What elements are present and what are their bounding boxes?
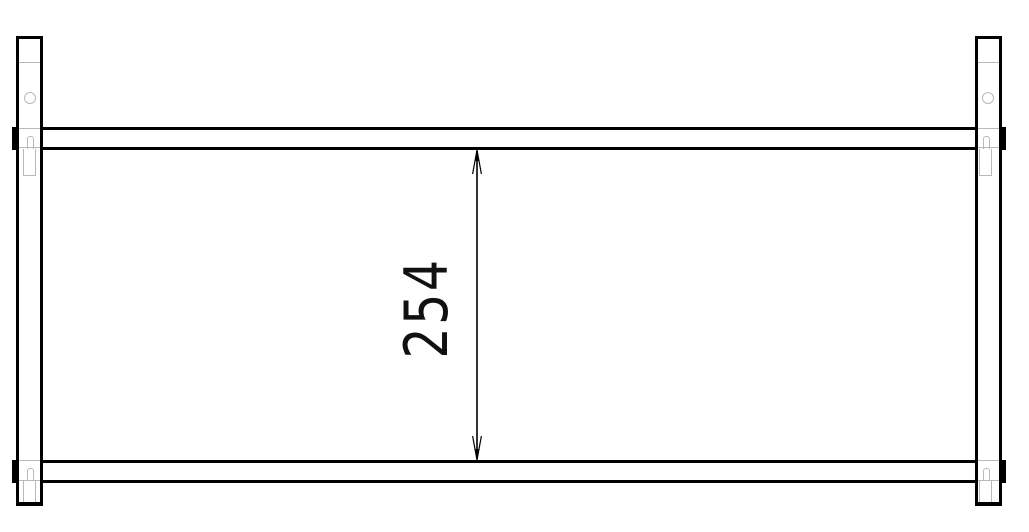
right-top-junction-tick [1000,127,1006,150]
right-top-hidden-line-upper [978,128,999,129]
top-rail [43,127,975,150]
right-bottom-pin-channel [979,481,992,502]
drawing-canvas: 254 [0,0,1029,532]
left-bottom-junction-tick [12,460,18,483]
right-bottom-pin-slot [983,468,990,481]
right-top-pin-slot [983,136,990,149]
dimension-arrow-up-icon [475,150,480,162]
dimension-label: 254 [397,257,457,358]
left-top-hidden-line-upper [19,128,40,129]
dimension-graphics [0,0,1029,532]
left-bottom-pin-slot [27,468,34,481]
left-post-hole [24,92,36,104]
left-top-junction-tick [12,127,18,150]
right-top-pin-channel [979,149,992,176]
right-bottom-junction-tick [1000,460,1006,483]
right-post [975,36,1002,506]
left-bottom-hidden-line-upper [19,460,40,461]
right-post-joint-line [978,62,999,63]
left-bottom-pin-channel [23,481,36,502]
left-top-pin-channel [23,149,36,176]
dimension-arrow-down-flanks [473,436,482,460]
dimension-arrow-down-icon [475,449,480,461]
right-post-hole [982,92,994,104]
left-post-joint-line [19,62,40,63]
bottom-rail [43,460,975,483]
right-bottom-hidden-line-upper [978,460,999,461]
left-top-pin-slot [27,136,34,149]
dimension-arrow-up-flanks [473,150,482,174]
left-post [16,36,43,506]
